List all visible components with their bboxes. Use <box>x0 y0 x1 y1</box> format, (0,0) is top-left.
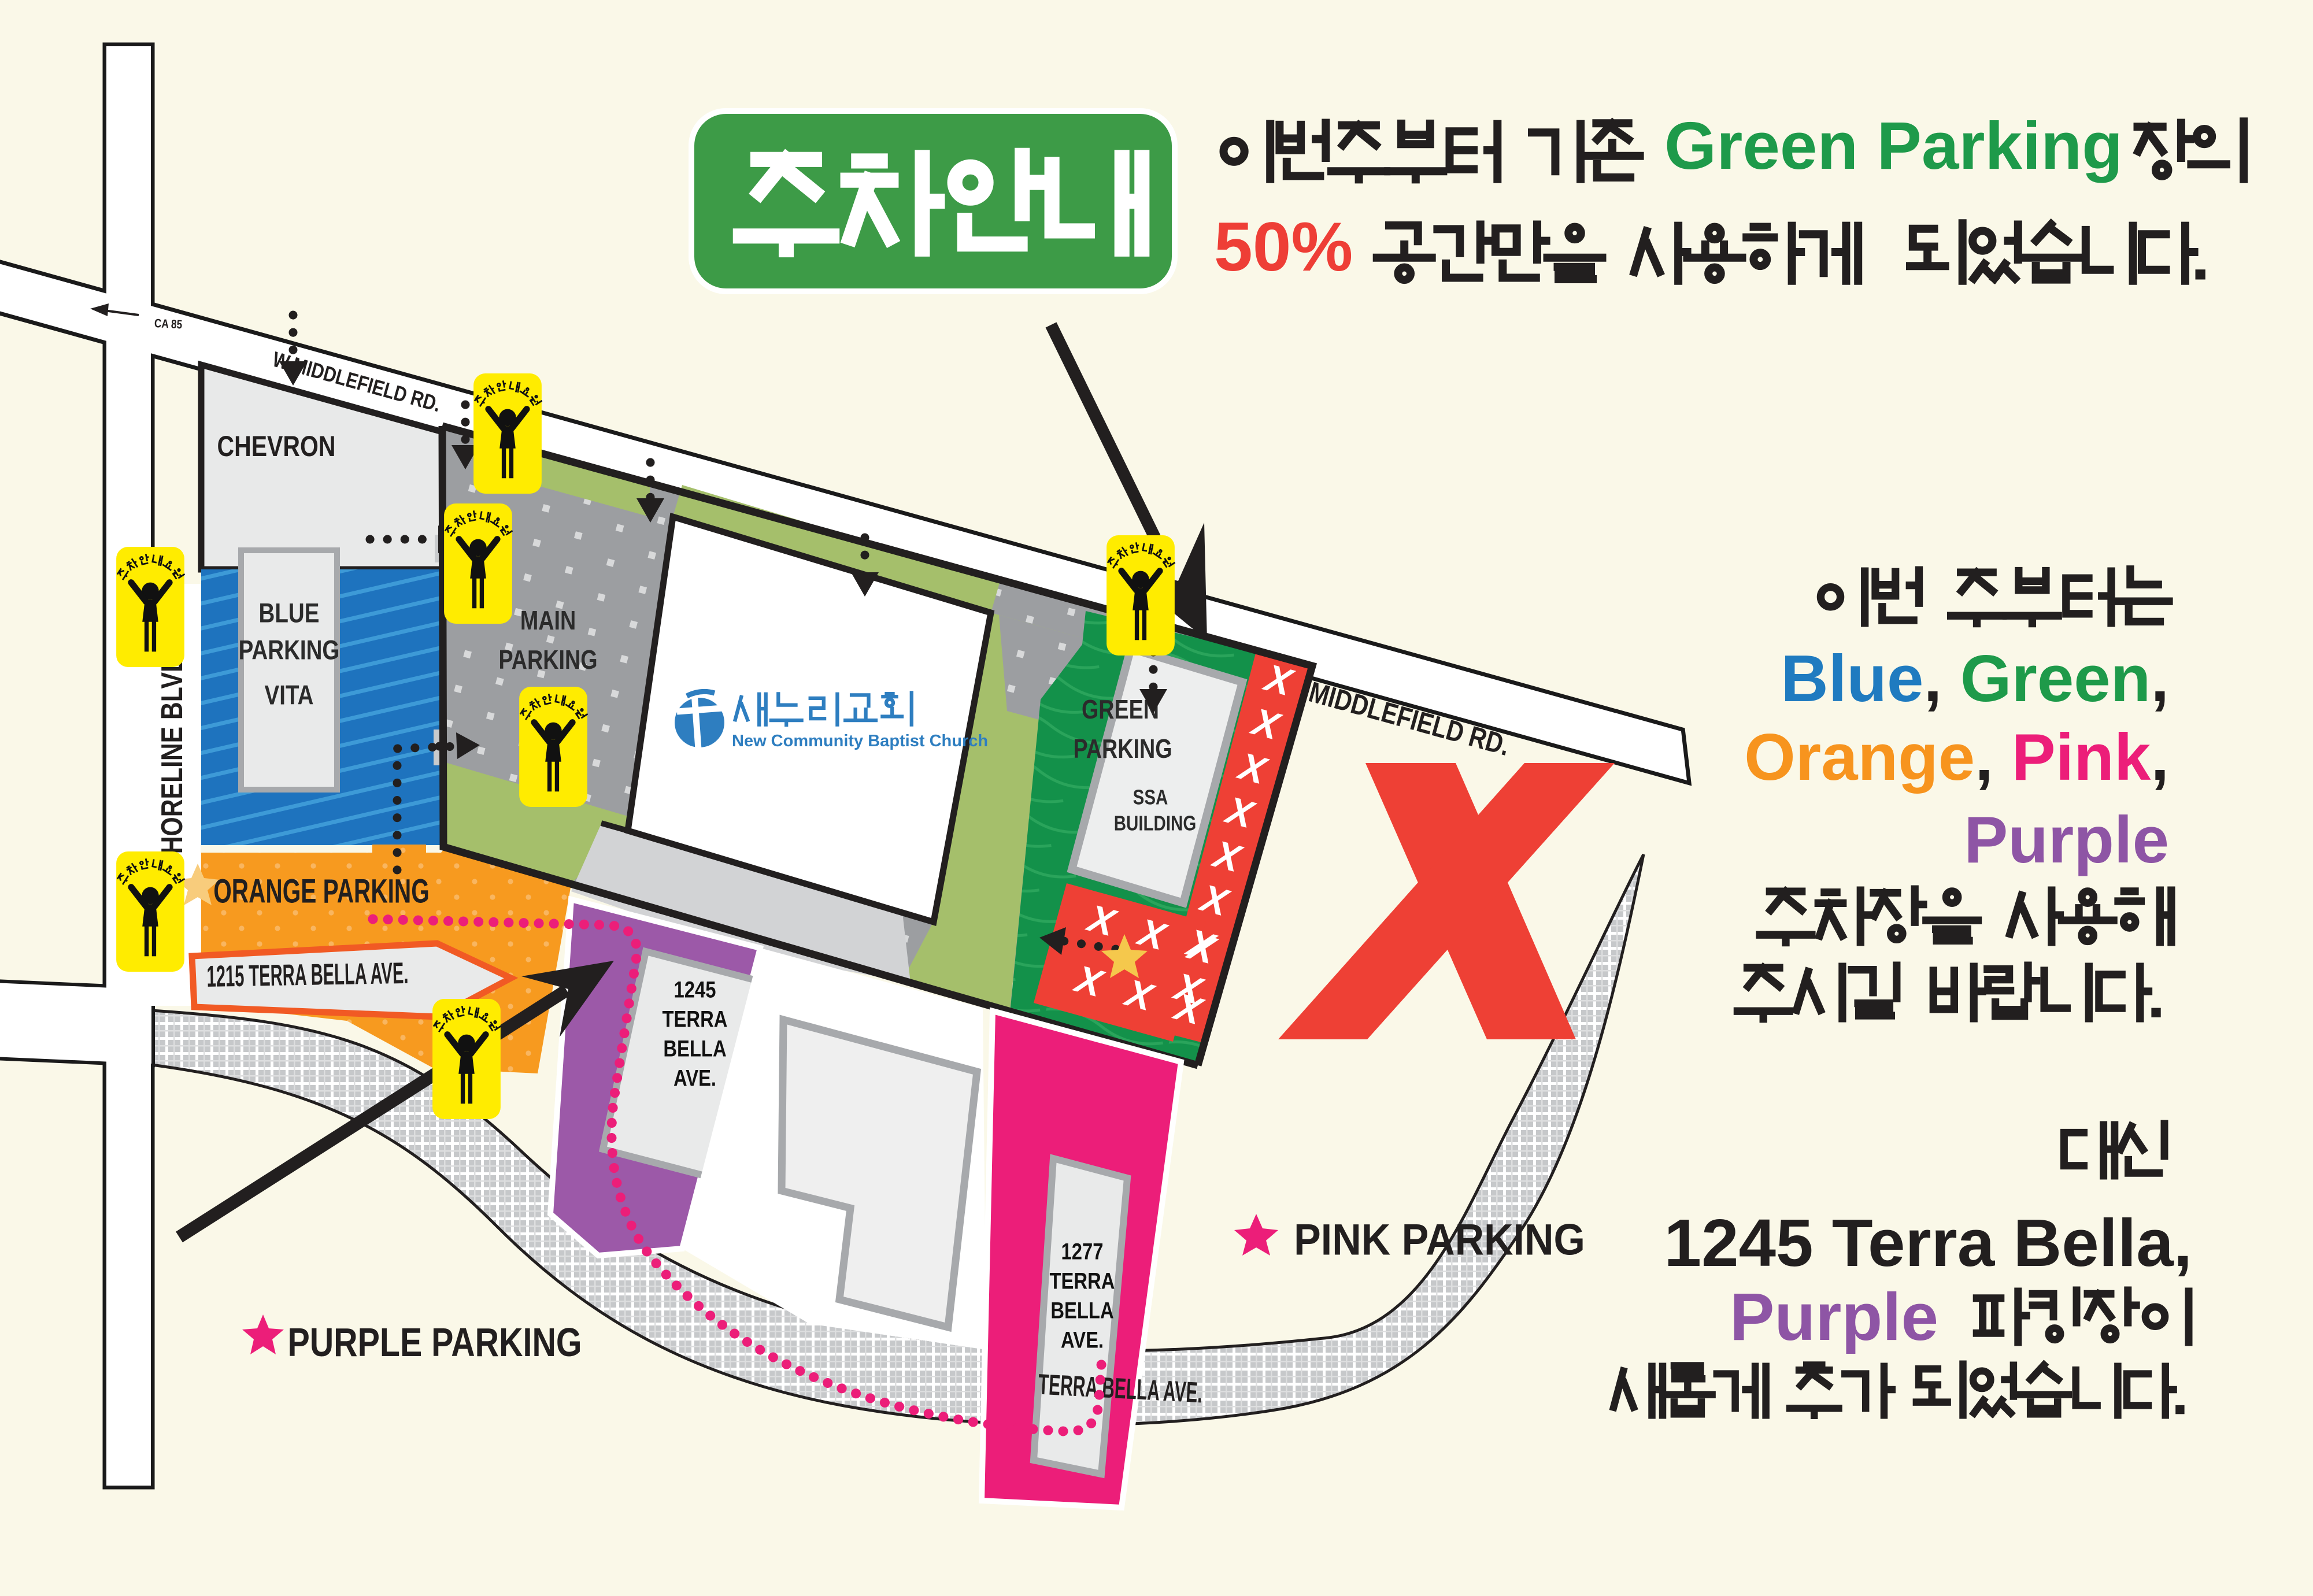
svg-text:1277: 1277 <box>1061 1239 1104 1265</box>
svg-text:BELLA: BELLA <box>1050 1298 1113 1324</box>
svg-text:1245 Terra Bella,: 1245 Terra Bella, <box>1664 1205 2192 1280</box>
svg-text:Orange, Pink,: Orange, Pink, <box>1744 721 2169 794</box>
svg-text:TERRA: TERRA <box>1050 1268 1115 1294</box>
svg-text:PURPLE PARKING: PURPLE PARKING <box>287 1320 582 1365</box>
svg-text:BLUE: BLUE <box>259 598 320 628</box>
svg-text:SHORELINE BLVD.: SHORELINE BLVD. <box>156 647 189 870</box>
svg-text:1215 TERRA BELLA AVE.: 1215 TERRA BELLA AVE. <box>206 956 409 993</box>
svg-text:MAIN: MAIN <box>520 605 576 635</box>
svg-text:Purple: Purple <box>1964 803 2169 877</box>
svg-text:PINK PARKING: PINK PARKING <box>1294 1216 1585 1264</box>
svg-text:Blue, Green,: Blue, Green, <box>1781 642 2169 716</box>
svg-text:PARKING: PARKING <box>498 645 597 674</box>
svg-text:ORANGE PARKING: ORANGE PARKING <box>213 873 430 910</box>
svg-text:PARKING: PARKING <box>1073 734 1172 763</box>
svg-text:BELLA: BELLA <box>663 1036 726 1062</box>
svg-text:SSA: SSA <box>1133 786 1168 809</box>
svg-text:AVE.: AVE. <box>673 1065 716 1091</box>
svg-text:Green Parking: Green Parking <box>1664 108 2123 183</box>
svg-text:VITA: VITA <box>265 680 314 710</box>
svg-text:Purple: Purple <box>1730 1279 1938 1354</box>
svg-text:New Community Baptist Church: New Community Baptist Church <box>732 732 988 750</box>
svg-text:AVE.: AVE. <box>1061 1327 1104 1353</box>
svg-text:1245: 1245 <box>674 977 716 1003</box>
svg-text:PARKING: PARKING <box>239 635 340 665</box>
svg-text:CA 85: CA 85 <box>154 317 183 332</box>
svg-text:CHEVRON: CHEVRON <box>217 430 335 462</box>
svg-text:TERRA: TERRA <box>663 1006 728 1032</box>
svg-text:50%: 50% <box>1214 208 1353 286</box>
svg-text:BUILDING: BUILDING <box>1114 812 1197 835</box>
